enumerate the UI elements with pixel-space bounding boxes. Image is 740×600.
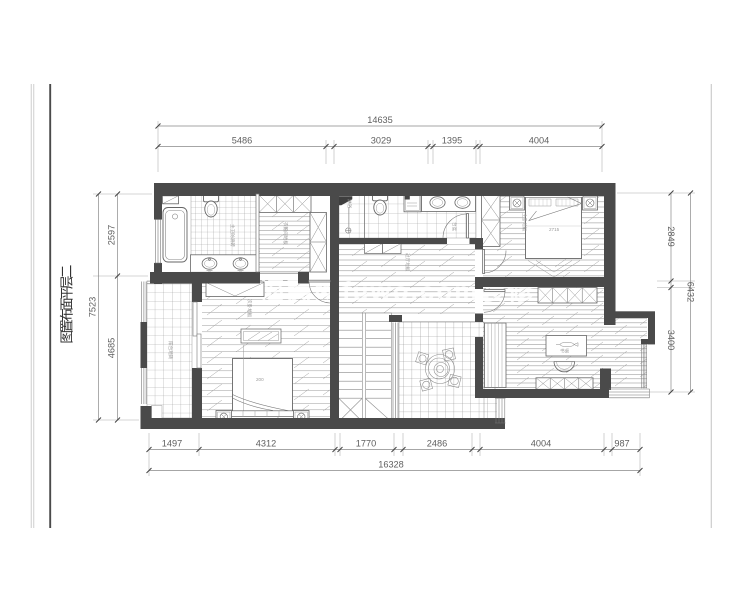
svg-text:16328: 16328 [378,460,404,470]
svg-text:台盆: 台盆 [451,222,458,232]
svg-text:3400: 3400 [666,330,676,350]
svg-text:3029: 3029 [371,136,391,146]
svg-text:4004: 4004 [529,136,549,146]
svg-text:1770: 1770 [356,439,376,449]
svg-text:4312: 4312 [256,439,276,449]
svg-text:5486: 5486 [232,136,252,146]
svg-text:图: 图 [60,330,75,344]
svg-text:2597: 2597 [107,225,117,245]
svg-text:主卫防滑砖: 主卫防滑砖 [229,224,236,247]
svg-text:4685: 4685 [107,338,117,358]
svg-text:2486: 2486 [427,439,447,449]
svg-text:4004: 4004 [531,439,551,449]
svg-text:书桌: 书桌 [560,348,570,355]
svg-text:7523: 7523 [88,297,98,317]
svg-text:1395: 1395 [442,136,462,146]
svg-text:14635: 14635 [367,115,393,125]
svg-text:987: 987 [614,439,629,449]
svg-text:1497: 1497 [162,439,182,449]
svg-text:2849: 2849 [666,226,676,246]
svg-text:2715: 2715 [549,227,560,232]
svg-text:阳台地砖: 阳台地砖 [167,341,174,360]
svg-text:主卧地板: 主卧地板 [521,213,528,232]
svg-text:过厅地板: 过厅地板 [404,253,411,272]
svg-text:淋浴: 淋浴 [346,199,353,209]
svg-text:衣帽间地板: 衣帽间地板 [282,222,289,245]
svg-text:200: 200 [256,377,264,382]
svg-text:6432: 6432 [686,282,696,302]
svg-text:次卧地板: 次卧地板 [246,299,253,318]
